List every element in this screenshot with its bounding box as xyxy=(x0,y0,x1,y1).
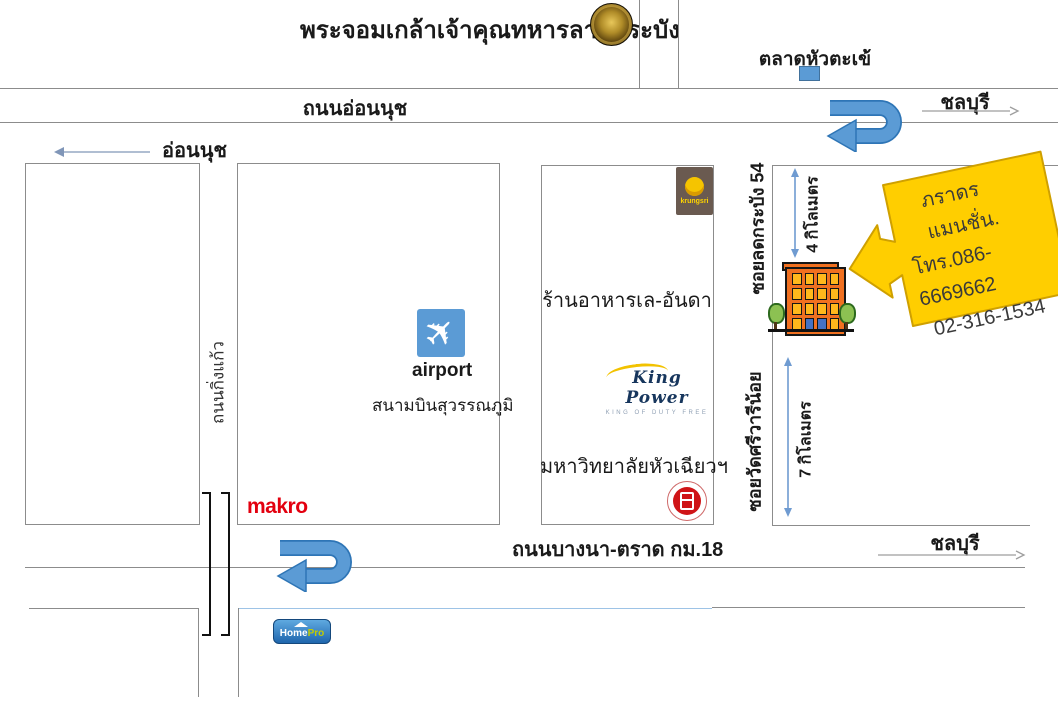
airport-th-label: สนามบินสุวรรณภูมิ xyxy=(372,392,497,419)
bangna-road-center-line xyxy=(25,567,1025,568)
kingpower-logo: King Power KING OF DUTY FREE xyxy=(598,362,716,416)
homepro-pro-text: Pro xyxy=(308,628,325,639)
soi-watsrivareenoi-label: ซอยวัดศรีวารีน้อย xyxy=(740,357,769,527)
onnut-dir-label: อ่อนนุช xyxy=(162,134,227,166)
distance-7km-label: 7 กิโลเมตร xyxy=(794,385,819,495)
kingkaew-lower-left-line xyxy=(198,608,199,697)
airport-en-label: airport xyxy=(412,360,472,382)
right-block-bottom-edge xyxy=(772,525,1030,526)
kingkaew-lower-right-line xyxy=(238,608,239,697)
bangna-road-label: ถนนบางนา-ตราด กม.18 xyxy=(512,533,698,565)
krungsri-logo: krungsri xyxy=(676,167,713,215)
kmitl-seal-icon xyxy=(590,3,633,46)
distance-7km-arrow-icon xyxy=(782,356,794,518)
chonburi-bottom-arrow-icon xyxy=(876,549,1026,561)
distance-4km-arrow-icon xyxy=(789,167,801,259)
left-block xyxy=(25,163,200,525)
mansion-callout: ภราดรแมนชั่น. โทร.086-6669662 02-316-153… xyxy=(831,145,1058,344)
chonburi-top-arrow-icon xyxy=(920,105,1020,117)
onnut-road-top-line xyxy=(0,88,1058,89)
tree-icon xyxy=(839,303,854,329)
makro-logo: makro xyxy=(247,495,308,519)
tree-icon xyxy=(768,303,783,329)
top-road-left-edge xyxy=(639,0,640,88)
right-block-left-edge xyxy=(772,165,773,525)
huachiew-seal-icon xyxy=(667,481,707,521)
bottom-left-block-edge xyxy=(29,608,198,609)
huachiew-university-label: มหาวิทยาลัยหัวเฉียวฯ xyxy=(540,450,712,482)
map-canvas: พระจอมเกล้าเจ้าคุณทหารลาดกระบัง ตลาดหัวต… xyxy=(0,0,1058,704)
homepro-home-text: Home xyxy=(280,628,308,639)
kingkaew-road-label: ถนนกิ่งแก้ว xyxy=(205,328,232,438)
airport-icon: ✈ xyxy=(417,309,465,357)
krungsri-name: krungsri xyxy=(680,198,708,205)
homepro-block-edge xyxy=(238,608,712,609)
onnut-west-arrow-icon xyxy=(52,146,152,158)
homepro-roof-icon xyxy=(294,622,308,627)
restaurant-label: ร้านอาหารเล-อันดา xyxy=(542,284,712,316)
bottom-right-block-edge xyxy=(712,607,1025,608)
market-marker xyxy=(799,66,820,81)
uturn-arrow-bottom-icon xyxy=(274,534,362,592)
onnut-road-label: ถนนอ่อนนุช xyxy=(280,92,430,124)
kingpower-tagline: KING OF DUTY FREE xyxy=(598,410,716,416)
airplane-glyph: ✈ xyxy=(416,308,465,357)
distance-4km-label: 4 กิโลเมตร xyxy=(801,167,826,263)
uturn-arrow-top-icon xyxy=(824,94,912,152)
top-road-right-edge xyxy=(678,0,679,88)
map-title: พระจอมเกล้าเจ้าคุณทหารลาดกระบัง xyxy=(300,10,598,49)
bridge-mark-right xyxy=(228,492,230,636)
mansion-building-icon xyxy=(768,262,854,332)
bridge-mark-left xyxy=(209,492,211,636)
homepro-logo: HomePro xyxy=(273,619,331,644)
krungsri-emblem-icon xyxy=(685,177,704,196)
